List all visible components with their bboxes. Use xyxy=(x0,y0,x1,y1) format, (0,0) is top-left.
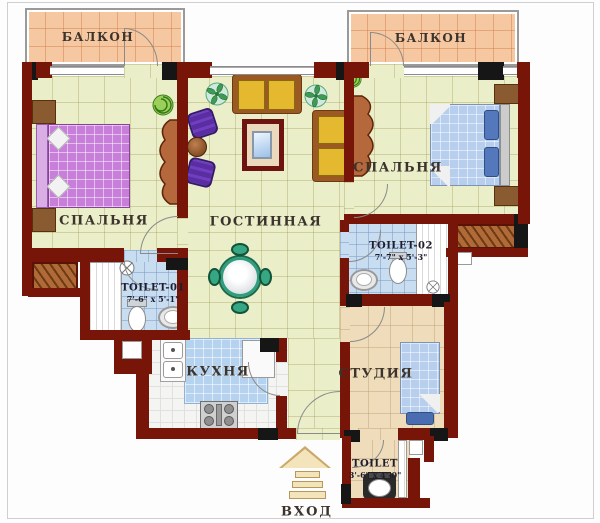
room-label-bedroom-right: СПАЛЬНЯ xyxy=(353,161,443,176)
entrance-step xyxy=(289,491,326,499)
nightstand xyxy=(32,208,56,232)
closet-hatched xyxy=(32,262,78,290)
bed-pillow xyxy=(406,412,434,425)
entrance-label: ВХОД xyxy=(281,505,333,520)
door-threshold xyxy=(368,64,404,78)
sofa-cushion xyxy=(318,148,345,176)
exhaust-fan-icon xyxy=(426,280,440,294)
room-label-toilet-01: TOILET-01 xyxy=(121,283,185,294)
stove-grill xyxy=(216,404,222,426)
door-threshold xyxy=(344,182,354,214)
room-label-balcony-right: БАЛКОН xyxy=(395,31,467,45)
living-room-floor xyxy=(183,250,349,338)
bed-pillow xyxy=(484,147,499,177)
wall-segment xyxy=(166,258,188,270)
side-table xyxy=(187,137,207,157)
wall-segment xyxy=(340,342,350,438)
room-label-toilet-03: TOILET xyxy=(352,459,398,470)
bed-fold xyxy=(420,394,440,412)
wall-segment xyxy=(444,302,458,438)
door-threshold xyxy=(340,307,350,342)
sink-drain xyxy=(171,367,175,371)
nightstand xyxy=(494,186,520,206)
entrance-step xyxy=(295,471,320,478)
room-label-living: ГОСТИННАЯ xyxy=(210,215,323,230)
room-label-kitchen: КУХНЯ xyxy=(186,365,250,380)
coffee-table xyxy=(252,131,272,159)
bed-headboard xyxy=(36,124,48,208)
duct-shaft xyxy=(456,252,472,265)
toilet-seat xyxy=(368,479,391,497)
wall-segment xyxy=(258,428,278,440)
window xyxy=(404,66,480,75)
room-dims-toilet-02: 7'-7" x 5'-3" xyxy=(375,252,427,262)
ceiling-fan-icon xyxy=(304,84,328,108)
wall-segment xyxy=(314,62,338,78)
window xyxy=(210,66,316,75)
entrance-step xyxy=(292,481,323,488)
wall-segment xyxy=(340,220,349,232)
door-threshold xyxy=(177,218,188,252)
stove-burner xyxy=(224,416,234,426)
dining-chair xyxy=(231,243,249,256)
plant-icon xyxy=(152,94,174,116)
wall-segment xyxy=(352,62,369,78)
door-threshold xyxy=(340,230,349,258)
wall-segment xyxy=(346,294,362,307)
sofa-cushion xyxy=(238,80,265,110)
ceiling-fan-icon xyxy=(205,82,229,106)
wall-segment xyxy=(28,288,84,297)
nightstand xyxy=(494,84,520,104)
sink-drain xyxy=(171,348,175,352)
stove-burner xyxy=(204,416,214,426)
room-label-bedroom-left: СПАЛЬНЯ xyxy=(59,214,149,229)
dining-table xyxy=(220,257,260,297)
wall-segment xyxy=(424,436,434,462)
window xyxy=(50,66,124,75)
wall-segment xyxy=(80,258,90,340)
door-threshold xyxy=(124,64,162,78)
sofa-cushion xyxy=(268,80,295,110)
wall-segment xyxy=(448,222,458,304)
room-dims-toilet-01: 7'-6" x 5'-1" xyxy=(127,294,179,304)
floor-plan: БАЛКОН БАЛКОН СПАЛЬНЯ СПАЛЬНЯ ГОСТИННАЯ … xyxy=(0,0,600,523)
dining-chair xyxy=(259,268,272,286)
wall-segment xyxy=(26,248,124,262)
wall-segment xyxy=(341,484,351,504)
wall-segment xyxy=(518,62,530,224)
wall-segment xyxy=(342,498,430,508)
washbasin-bowl xyxy=(356,273,372,286)
wall-segment xyxy=(260,338,279,352)
duct-shaft xyxy=(409,440,423,455)
sofa-cushion xyxy=(318,116,345,144)
toilet-bowl xyxy=(128,306,146,332)
room-label-balcony-left: БАЛКОН xyxy=(62,30,134,44)
bed-headboard xyxy=(500,104,510,186)
bed-pillow xyxy=(484,110,499,140)
dining-chair xyxy=(231,301,249,314)
wall-segment xyxy=(344,214,528,224)
room-label-toilet-02: TOILET-02 xyxy=(369,241,433,252)
bed-fold xyxy=(430,104,450,124)
shower-panel xyxy=(398,440,407,498)
room-dims-toilet-03: 3'-6" x 4'-0" xyxy=(349,470,401,480)
stove-burner xyxy=(224,404,234,414)
closet-hatched xyxy=(452,224,516,249)
nightstand xyxy=(32,100,56,124)
room-label-studio: СТУДИЯ xyxy=(339,367,414,382)
entrance-arrow-icon xyxy=(282,449,328,468)
door-threshold xyxy=(358,428,398,440)
stove-burner xyxy=(204,404,214,414)
wall-segment xyxy=(177,62,188,218)
dining-chair xyxy=(208,268,221,286)
duct-shaft xyxy=(122,341,142,359)
wall-segment xyxy=(478,62,504,80)
